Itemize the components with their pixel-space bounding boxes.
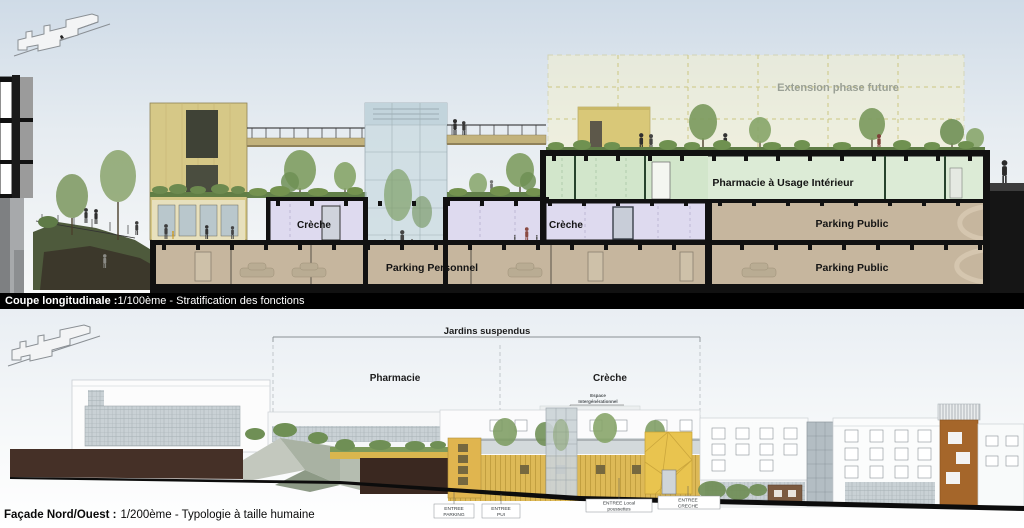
entrance-creche-label: ENTREE CRECHE [658,496,720,510]
svg-text:ENTREE: ENTREE [678,498,697,504]
glazing-grid [85,406,240,446]
pharmacie-ui-label: Pharmacie à Usage Intérieur [712,177,853,189]
arcade-glazing [845,482,935,504]
ribbon-glazing [272,426,458,442]
parking-public-upper-level: Parking Public [712,203,983,240]
door [652,162,670,199]
creche-right-room: Crèche [546,203,708,240]
espace-label-line1: Espace [590,393,606,398]
creche-entrance-box [645,432,692,494]
entrance-poussettes-label: ENTREE Local poussettes [586,499,652,513]
orange-tower [938,404,980,506]
section-title: Coupe longitudinale : [5,295,117,307]
facade-elevation-drawing: Jardins suspendus Pharmacie Crèche Espac… [0,309,1024,528]
svg-text:ENTREE Local: ENTREE Local [603,501,635,507]
yellow-tower [150,103,247,240]
longitudinal-section-drawing: Extension phase future [0,0,1024,293]
architectural-board: Extension phase future [0,0,1024,528]
facade-title: Façade Nord/Ouest :1/200ème - Typologie … [4,509,315,521]
existing-building-left [72,380,270,452]
parking-personnel-label: Parking Personnel [386,262,478,274]
pavilion-door [590,121,602,147]
vent-grid [88,390,104,408]
entrance-parking-label: ENTREE PARKING [434,504,474,518]
grey-stair-tower [807,422,833,506]
entrance-pui-label: ENTREE PUI [482,504,520,518]
extension-label: Extension phase future [777,82,899,94]
svg-text:poussettes: poussettes [607,507,631,513]
creche-right-label: Crèche [549,220,583,231]
espace-label-line2: Intergénérationnel [578,399,617,404]
svg-text:ENTREE: ENTREE [444,506,463,512]
creche-left-label: Crèche [297,220,331,231]
brown-wall [10,449,243,479]
section-title-bar: Coupe longitudinale :1/100ème - Stratifi… [0,293,1024,309]
svg-text:PARKING: PARKING [443,512,465,518]
creche-left-room: Crèche [270,200,367,243]
jardins-label: Jardins suspendus [444,326,531,337]
glass-stair [546,408,577,497]
section-subtitle: 1/100ème - Stratification des fonctions [117,295,304,307]
parking-personnel-level: Parking Personnel [156,244,708,284]
bush [38,216,58,228]
pharmacie-ui-level: Pharmacie à Usage Intérieur [546,156,985,200]
door [662,470,676,494]
svg-text:ENTREE: ENTREE [491,506,510,512]
creche-mid-room [447,200,545,243]
svg-text:PUI: PUI [497,512,505,518]
brown-wing [768,485,802,503]
interior-tree [412,196,432,228]
parking-public-upper-label: Parking Public [816,218,889,230]
tower-opening [186,110,218,158]
svg-text:CRECHE: CRECHE [678,504,698,510]
existing-buildings-right [698,404,1024,508]
pharmacie-zone-label: Pharmacie [370,373,421,384]
parking-public-lower-label: Parking Public [816,262,889,274]
parking-public-lower-level: Parking Public [712,244,983,284]
tree [469,173,487,195]
creche-zone-label: Crèche [593,373,627,384]
cabinet [950,168,962,198]
interior-tree [384,169,412,221]
door [613,207,633,239]
